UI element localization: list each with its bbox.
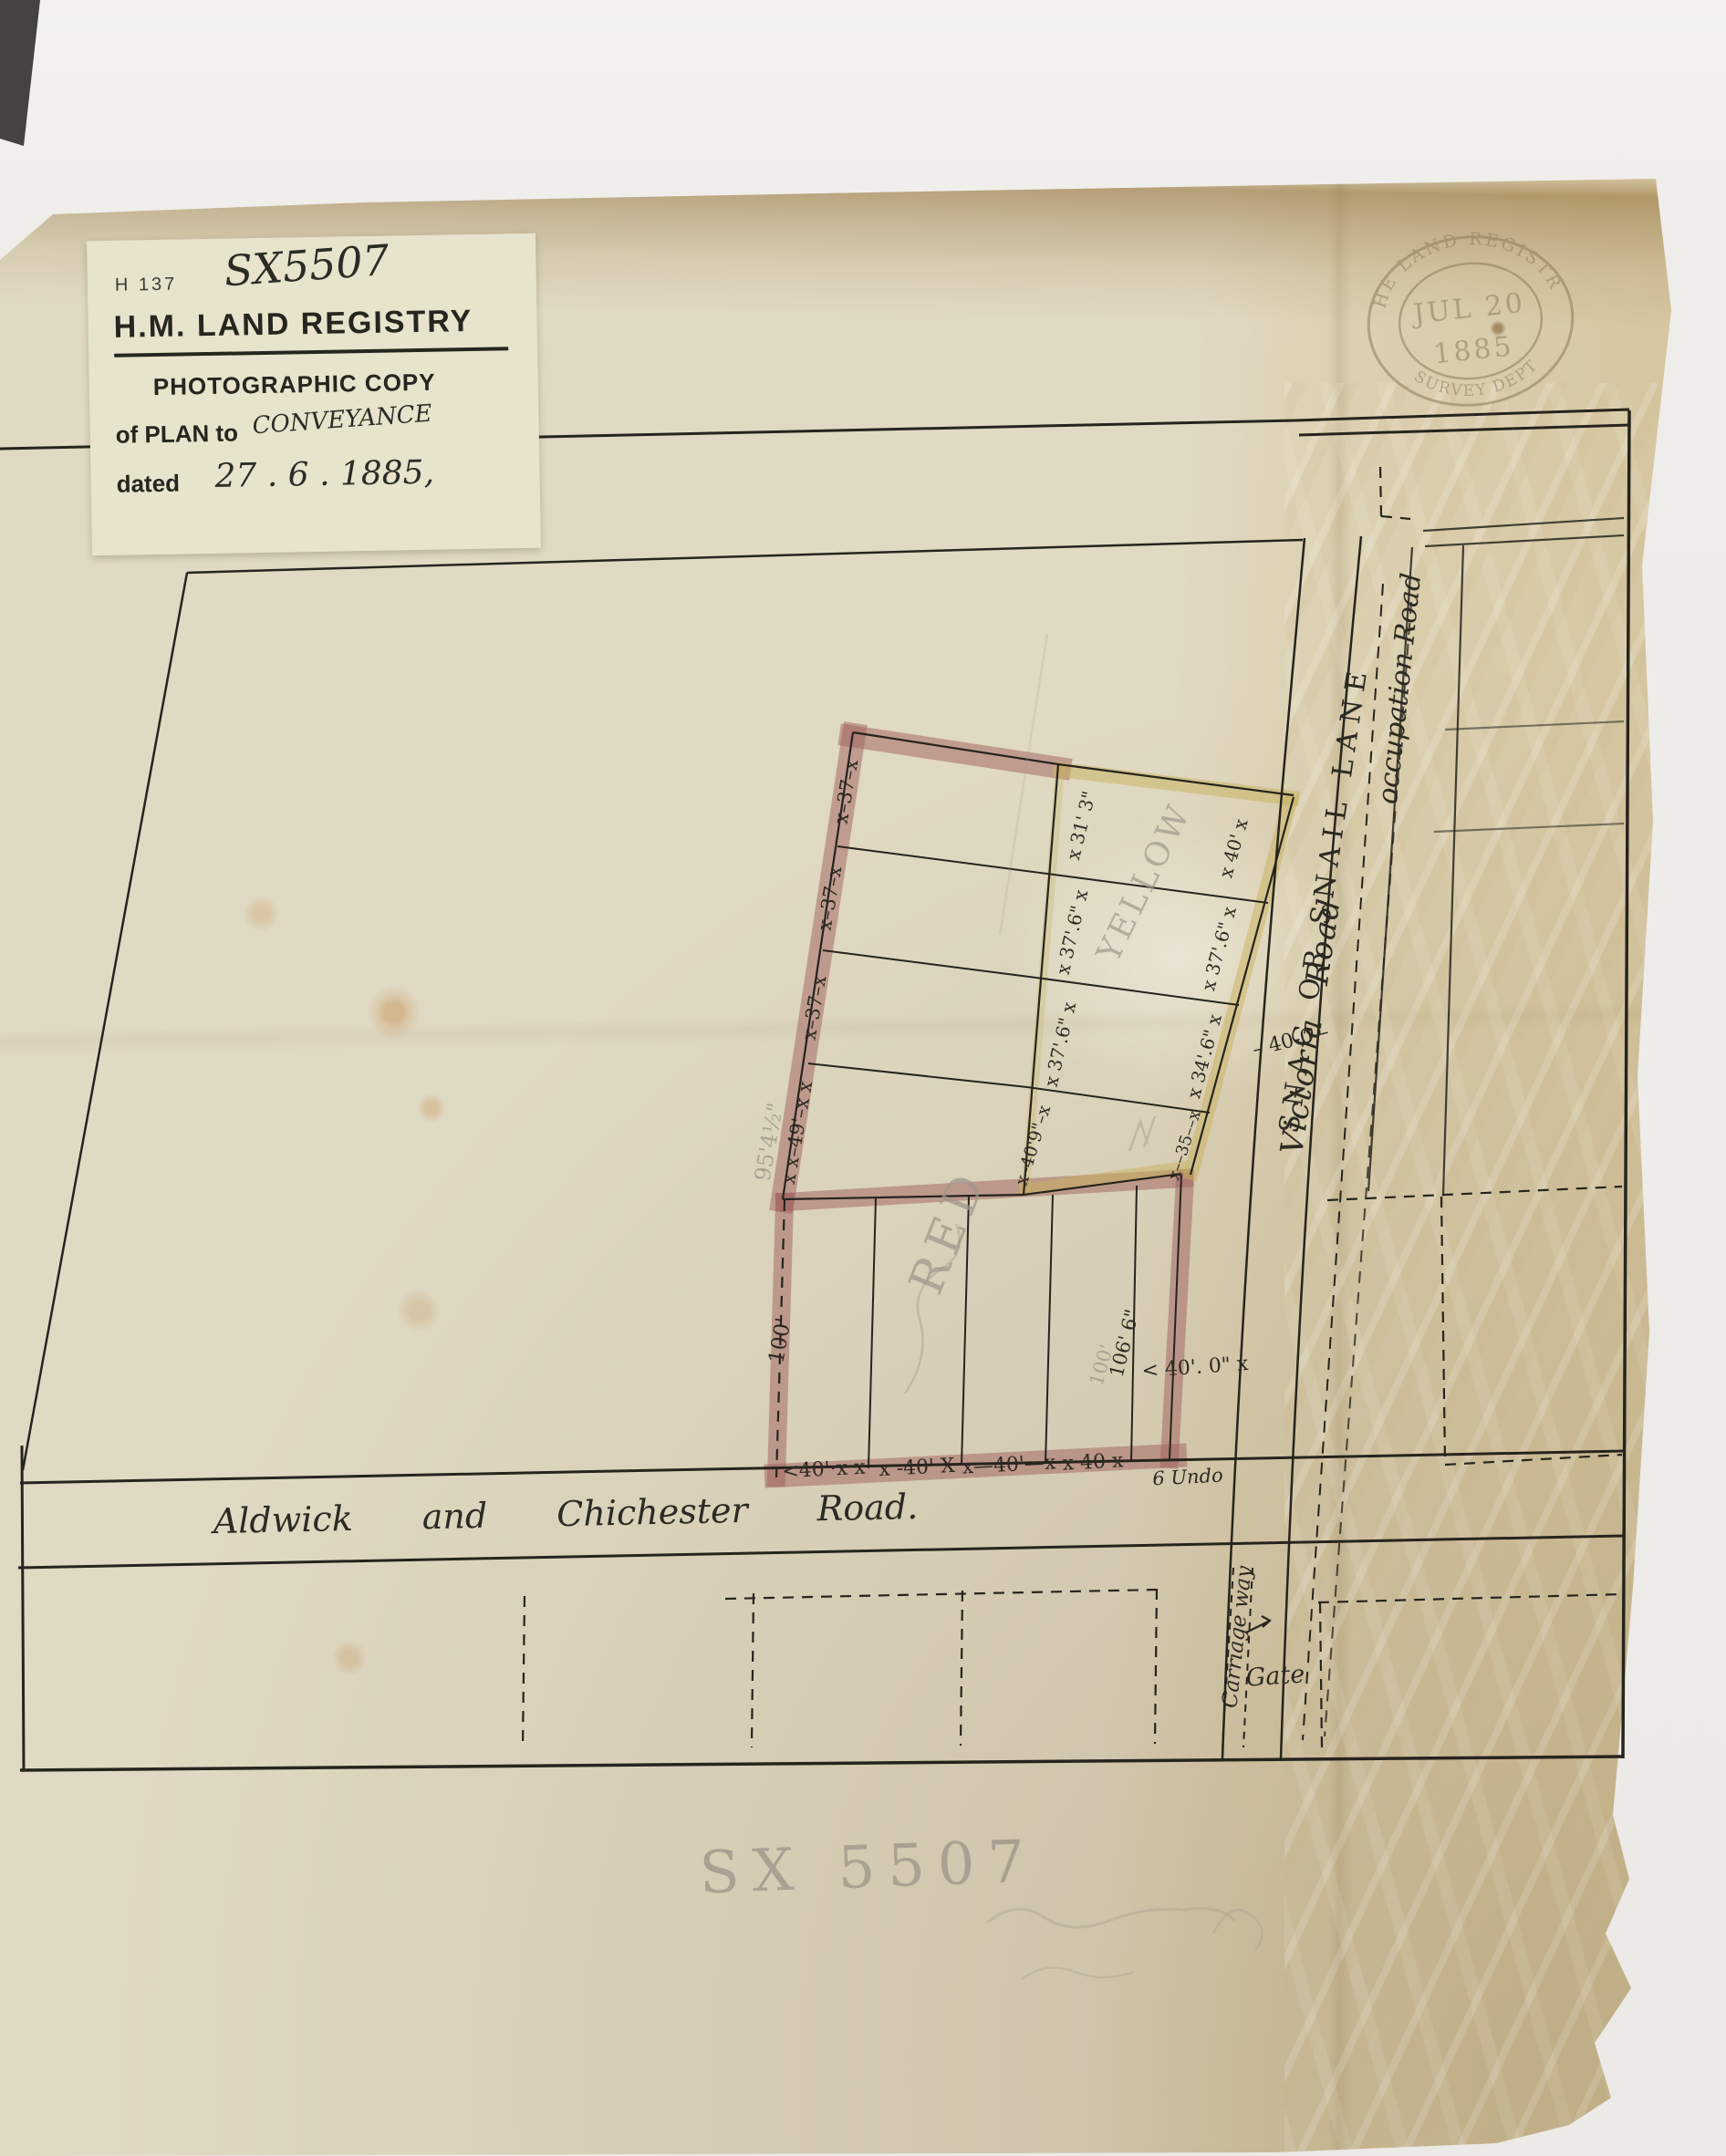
stamp-date-month: JUL 20 <box>1409 287 1527 331</box>
sticker-handwritten-reference: SX5507 <box>223 235 391 296</box>
sticker-subtitle: PHOTOGRAPHIC COPY <box>153 368 436 401</box>
dim-label-lot-1: <40'·x x <box>782 1458 866 1483</box>
pencil-sheet-reference: SX 5507 <box>699 1833 1039 1903</box>
frontage-note-label: 6 Undo <box>1152 1466 1223 1488</box>
field-boundary <box>23 540 1303 1470</box>
stamp-date-year: 1885 <box>1432 330 1516 370</box>
land-registry-sticker: H 137 SX5507 H.M. LAND REGISTRY PHOTOGRA… <box>87 233 541 556</box>
sticker-plan-line-printed: of PLAN to <box>115 419 238 449</box>
dim-label-lot-4: x 40 x <box>1062 1451 1124 1474</box>
sticker-title: H.M. LAND REGISTRY <box>113 304 473 346</box>
photographed-plan-document: THE LAND REGISTRY SURVEY DEPT JUL 20 188… <box>0 0 1726 2156</box>
sticker-title-underline <box>114 347 508 358</box>
sticker-date-label: dated <box>116 470 180 499</box>
sticker-plan-line-handwritten: CONVEYANCE <box>252 400 433 441</box>
sticker-form-number: H 137 <box>115 275 178 296</box>
gate-label: Gate <box>1245 1662 1305 1690</box>
sticker-date-value: 27 . 6 . 1885, <box>214 454 434 495</box>
dim-label-lot-3: x—40'—x <box>962 1453 1056 1477</box>
date-stamp: THE LAND REGISTRY SURVEY DEPT JUL 20 188… <box>1359 219 1581 415</box>
dashed-boundary-lines <box>523 467 1622 1749</box>
dim-label-lot-2: x -40' X <box>879 1456 956 1480</box>
